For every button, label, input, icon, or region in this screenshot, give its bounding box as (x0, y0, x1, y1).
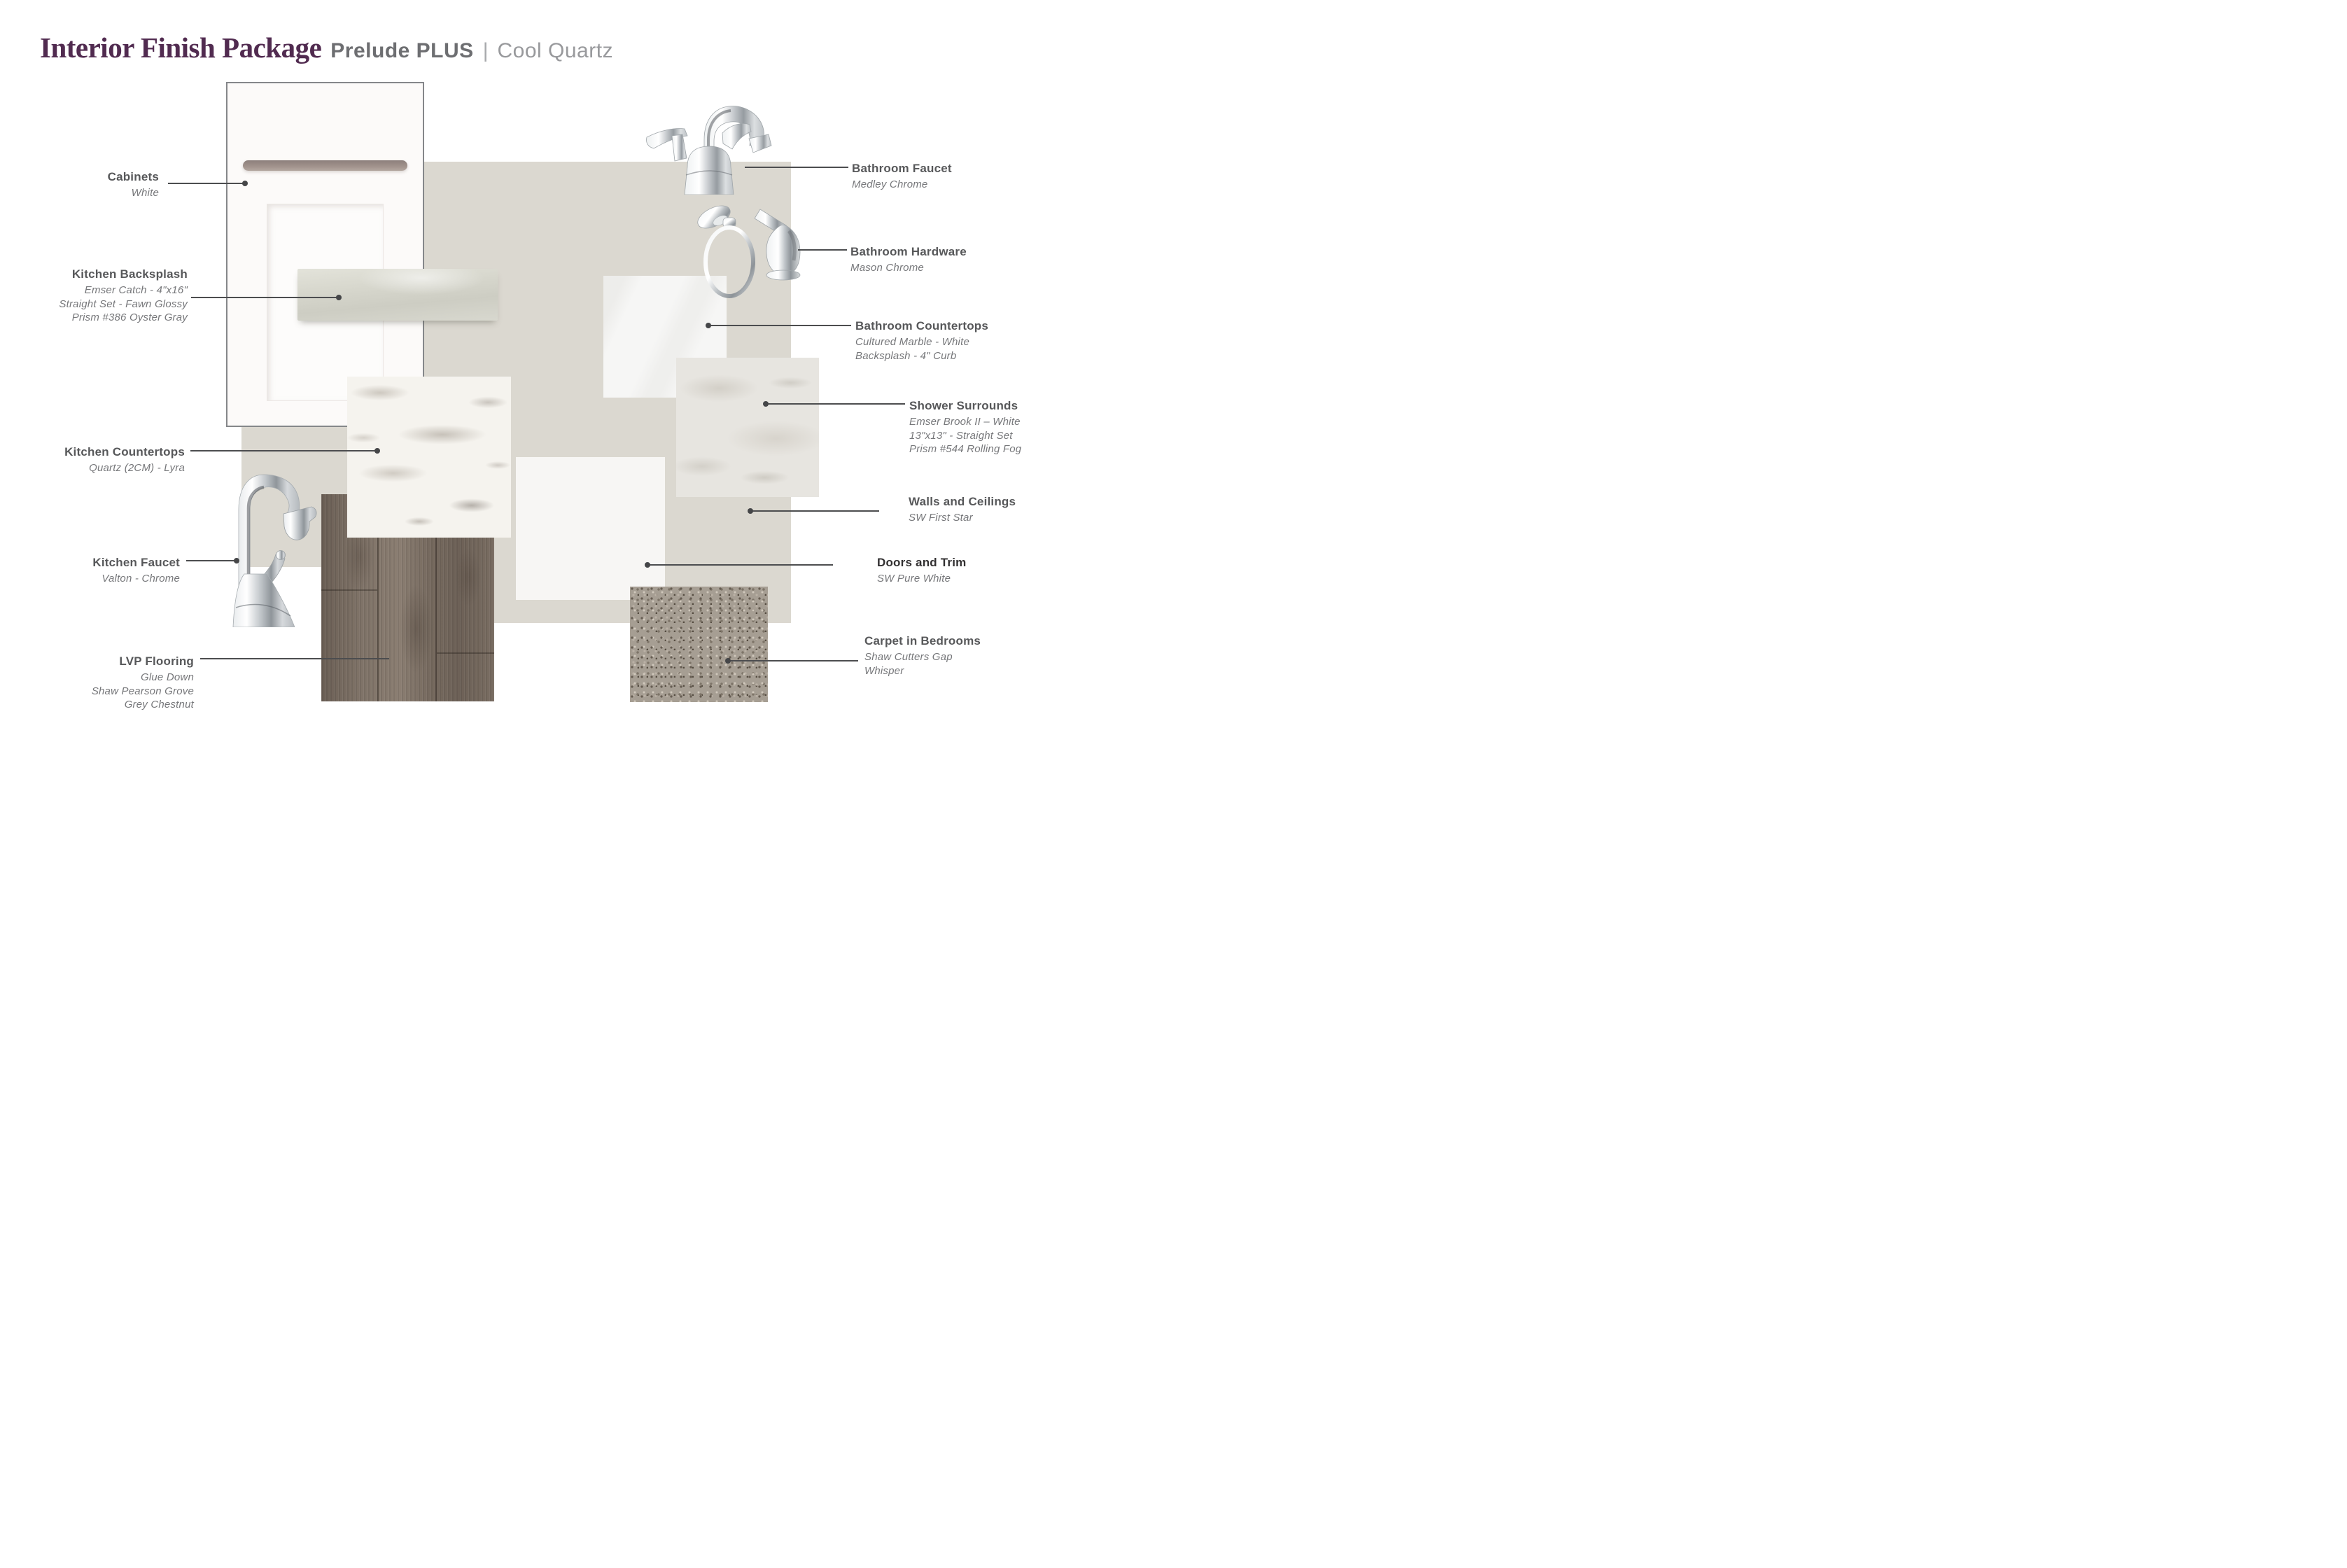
label-cabinets-detail: White (0, 186, 159, 200)
faucet-handle-knob (276, 551, 286, 560)
label-bathroom-hardware-title: Bathroom Hardware (850, 244, 967, 259)
label-lvp-flooring-detail: Grey Chestnut (0, 698, 194, 712)
shower-surround-tile-swatch (676, 358, 819, 497)
label-bathroom-countertops-title: Bathroom Countertops (855, 318, 988, 333)
leader-lvp-flooring (200, 658, 389, 659)
label-lvp-flooring-title: LVP Flooring (0, 654, 194, 668)
leader-dot (748, 508, 753, 514)
leader-kitchen-faucet (186, 560, 238, 561)
label-cabinets: Cabinets White (0, 169, 159, 200)
plank-joint (321, 589, 377, 591)
carpet-swatch (630, 587, 768, 702)
leader-walls-ceilings (749, 510, 879, 512)
label-cabinets-title: Cabinets (0, 169, 159, 184)
label-bathroom-countertops: Bathroom Countertops Cultured Marble - W… (855, 318, 988, 363)
label-kitchen-faucet-detail: Valton - Chrome (0, 572, 180, 586)
label-kitchen-backsplash-title: Kitchen Backsplash (0, 267, 188, 281)
leader-doors-trim (646, 564, 833, 566)
leader-dot (234, 558, 239, 563)
leader-bathroom-faucet (745, 167, 848, 168)
finish-package-board: Interior Finish Package Prelude PLUS | C… (0, 0, 1098, 734)
leader-bathroom-countertops (707, 325, 851, 326)
label-carpet-in-bedrooms-detail: Shaw Cutters Gap (864, 650, 981, 664)
leader-kitchen-countertops (190, 450, 379, 451)
label-lvp-flooring-detail: Shaw Pearson Grove (0, 685, 194, 699)
package-name: Prelude PLUS (330, 39, 473, 63)
label-kitchen-backsplash: Kitchen Backsplash Emser Catch - 4"x16" … (0, 267, 188, 325)
label-walls-and-ceilings: Walls and Ceilings SW First Star (909, 494, 1016, 525)
kitchen-faucet-image (232, 470, 321, 627)
label-bathroom-faucet-title: Bathroom Faucet (852, 161, 952, 176)
leader-dot (725, 658, 731, 664)
label-doors-and-trim-detail: SW Pure White (877, 572, 967, 586)
label-shower-surrounds-title: Shower Surrounds (909, 398, 1021, 413)
label-shower-surrounds-detail: Emser Brook II – White (909, 415, 1021, 429)
label-doors-and-trim-title: Doors and Trim (877, 555, 967, 570)
doors-trim-paint-swatch (516, 457, 665, 600)
left-handle-post (672, 134, 687, 161)
label-bathroom-countertops-detail: Cultured Marble - White (855, 335, 988, 349)
leader-dot (336, 295, 342, 300)
label-kitchen-backsplash-detail: Straight Set - Fawn Glossy (0, 297, 188, 311)
label-lvp-flooring: LVP Flooring Glue Down Shaw Pearson Grov… (0, 654, 194, 712)
label-kitchen-countertops: Kitchen Countertops Quartz (2CM) - Lyra (0, 444, 185, 475)
right-handle-lever (722, 124, 751, 150)
leader-carpet (727, 660, 858, 661)
leader-dot (645, 562, 650, 568)
plank-joint (437, 652, 494, 654)
faucet-base (233, 574, 295, 627)
leader-bathroom-hardware (798, 249, 847, 251)
label-bathroom-faucet: Bathroom Faucet Medley Chrome (852, 161, 952, 192)
label-kitchen-countertops-title: Kitchen Countertops (0, 444, 185, 459)
kitchen-backsplash-tile-swatch (297, 269, 498, 321)
palette-name: Cool Quartz (497, 39, 613, 63)
label-bathroom-hardware-detail: Mason Chrome (850, 261, 967, 275)
label-shower-surrounds-detail: 13"x13" - Straight Set (909, 429, 1021, 443)
leader-dot (763, 401, 769, 407)
label-bathroom-countertops-detail: Backsplash - 4" Curb (855, 349, 988, 363)
ring (706, 227, 753, 296)
label-kitchen-backsplash-detail: Emser Catch - 4"x16" (0, 283, 188, 297)
leader-cabinets (168, 183, 246, 184)
tank-lever-image (755, 206, 808, 281)
kitchen-countertop-quartz-swatch (347, 377, 511, 538)
towel-ring-image (697, 202, 757, 300)
bathroom-faucet-image (644, 97, 777, 195)
cabinet-drawer-pull-recess (243, 160, 407, 171)
label-shower-surrounds-detail: Prism #544 Rolling Fog (909, 442, 1021, 456)
leader-dot (706, 323, 711, 328)
label-doors-and-trim: Doors and Trim SW Pure White (877, 555, 967, 586)
cabinet-door-swatch (226, 82, 424, 427)
page-header: Interior Finish Package Prelude PLUS | C… (40, 31, 613, 64)
label-kitchen-faucet: Kitchen Faucet Valton - Chrome (0, 555, 180, 586)
bell-base-flange (766, 270, 800, 280)
label-carpet-in-bedrooms-title: Carpet in Bedrooms (864, 633, 981, 648)
page-title: Interior Finish Package (40, 31, 321, 64)
label-shower-surrounds: Shower Surrounds Emser Brook II – White … (909, 398, 1021, 456)
label-bathroom-faucet-detail: Medley Chrome (852, 178, 952, 192)
label-walls-and-ceilings-detail: SW First Star (909, 511, 1016, 525)
label-walls-and-ceilings-title: Walls and Ceilings (909, 494, 1016, 509)
label-bathroom-hardware: Bathroom Hardware Mason Chrome (850, 244, 967, 275)
leader-shower-surrounds (764, 403, 905, 405)
label-carpet-in-bedrooms: Carpet in Bedrooms Shaw Cutters Gap Whis… (864, 633, 981, 678)
label-kitchen-countertops-detail: Quartz (2CM) - Lyra (0, 461, 185, 475)
header-divider: | (483, 39, 489, 63)
label-kitchen-backsplash-detail: Prism #386 Oyster Gray (0, 311, 188, 325)
leader-dot (242, 181, 248, 186)
leader-kitchen-backsplash (191, 297, 340, 298)
label-carpet-in-bedrooms-detail: Whisper (864, 664, 981, 678)
label-lvp-flooring-detail: Glue Down (0, 671, 194, 685)
label-kitchen-faucet-title: Kitchen Faucet (0, 555, 180, 570)
leader-dot (374, 448, 380, 454)
